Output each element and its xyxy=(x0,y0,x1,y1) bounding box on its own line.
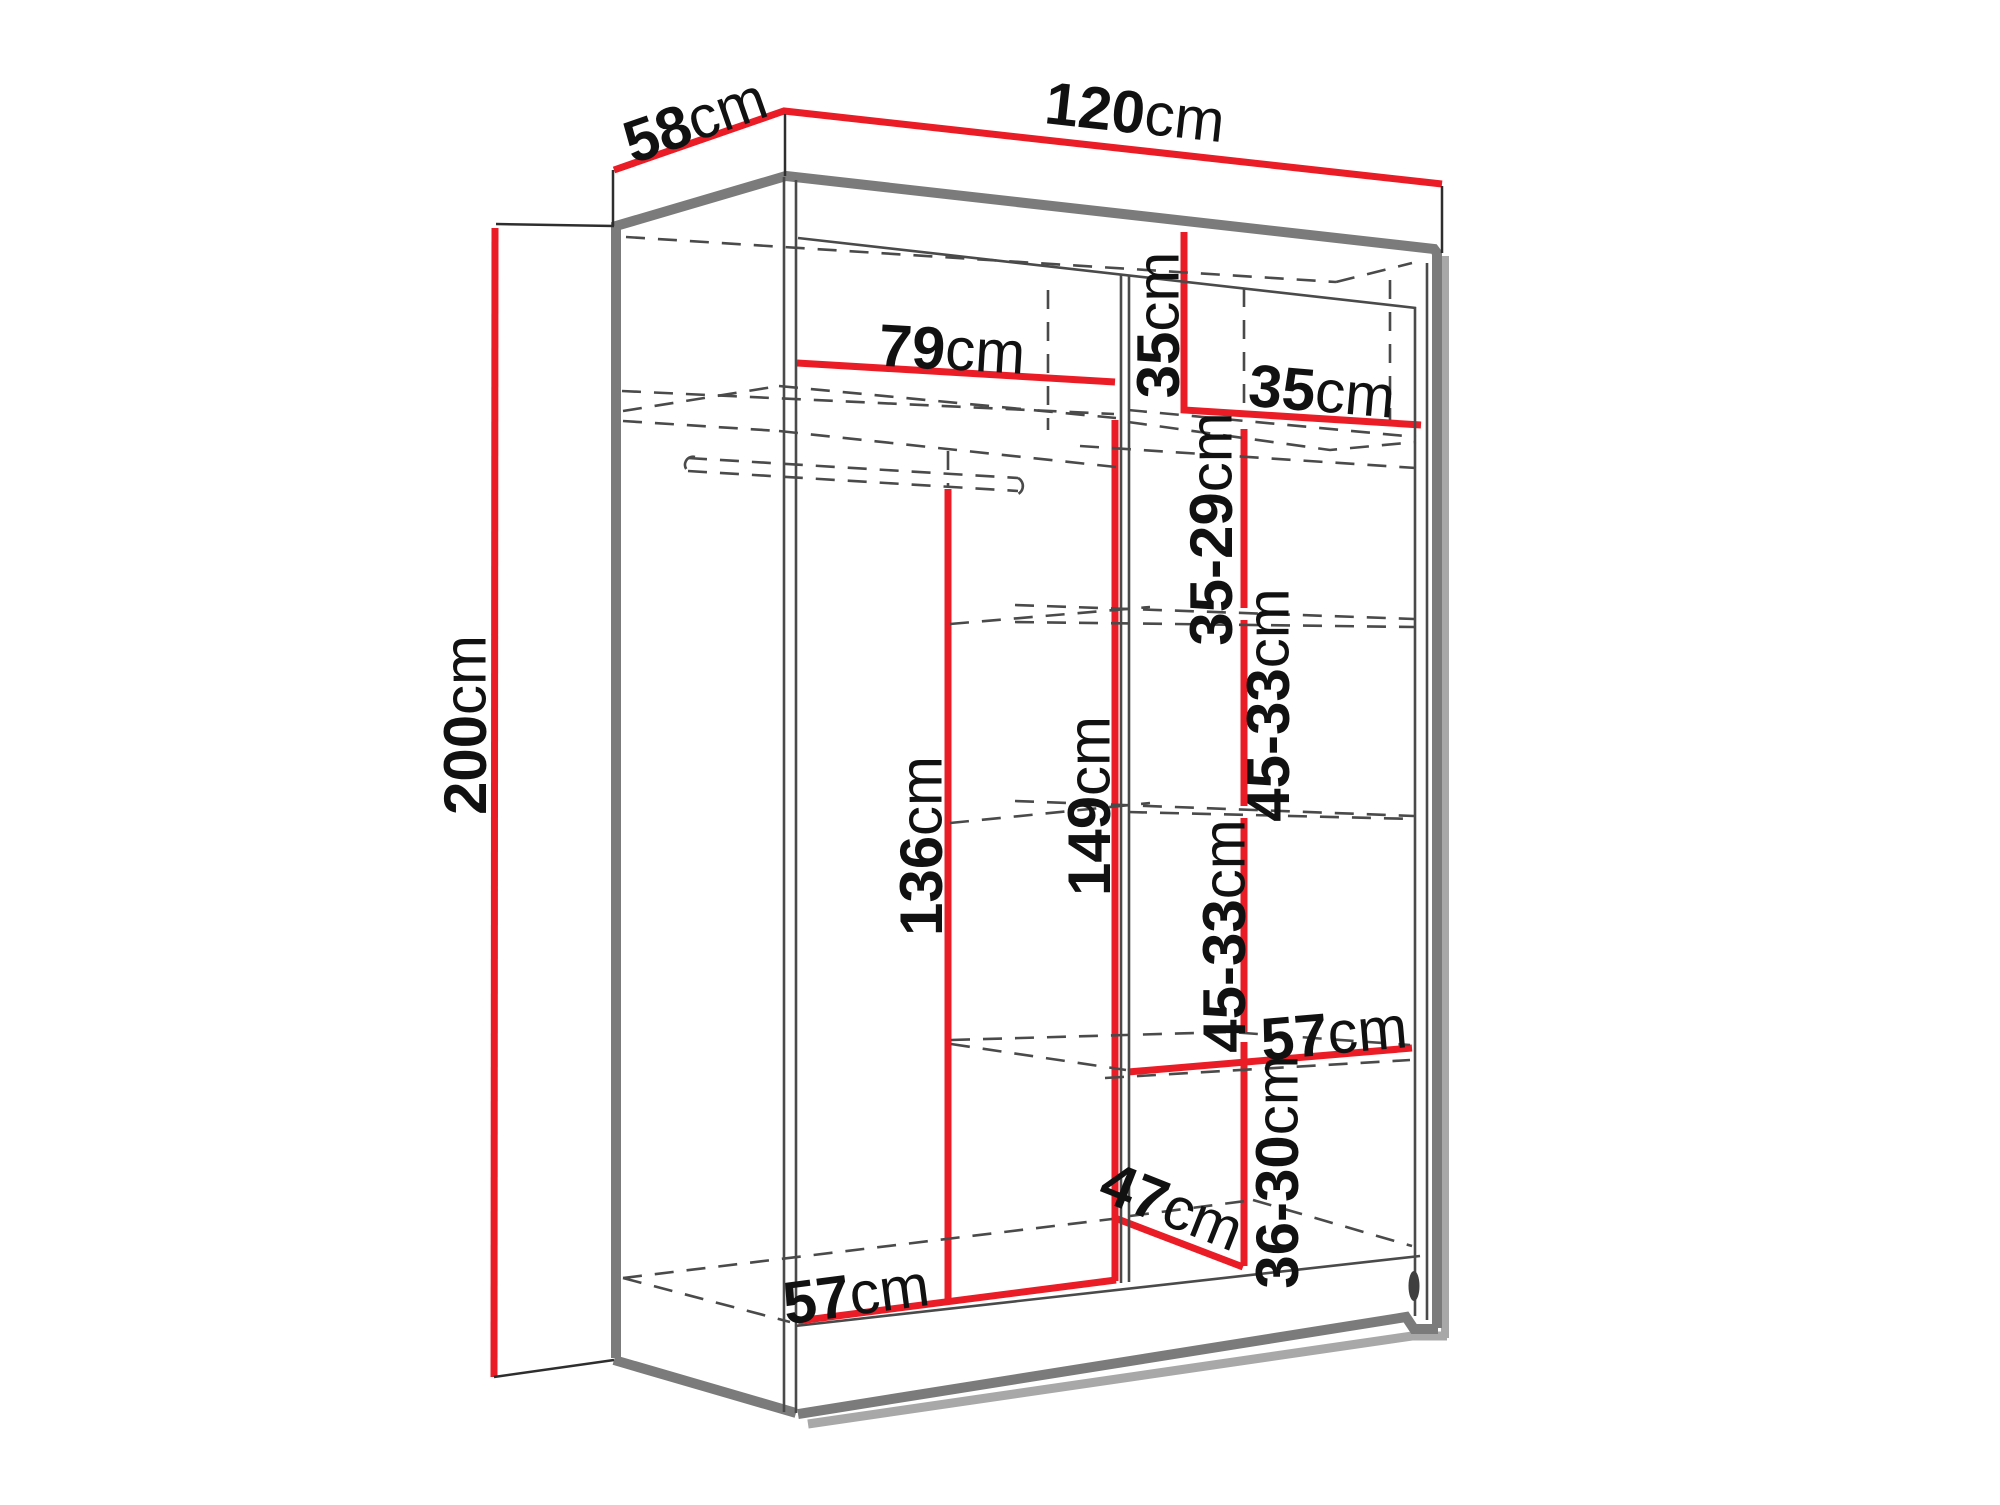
svg-text:79cm: 79cm xyxy=(877,311,1028,387)
svg-text:36-30cm: 36-30cm xyxy=(1244,1055,1311,1288)
svg-text:57cm: 57cm xyxy=(1258,993,1410,1073)
svg-text:136cm: 136cm xyxy=(888,756,955,936)
svg-text:149cm: 149cm xyxy=(1056,716,1123,896)
svg-text:35cm: 35cm xyxy=(1246,351,1398,431)
svg-text:45-33cm: 45-33cm xyxy=(1191,819,1258,1052)
svg-text:200cm: 200cm xyxy=(432,635,499,815)
svg-text:35cm: 35cm xyxy=(1125,252,1192,399)
svg-text:45-33cm: 45-33cm xyxy=(1235,588,1302,821)
